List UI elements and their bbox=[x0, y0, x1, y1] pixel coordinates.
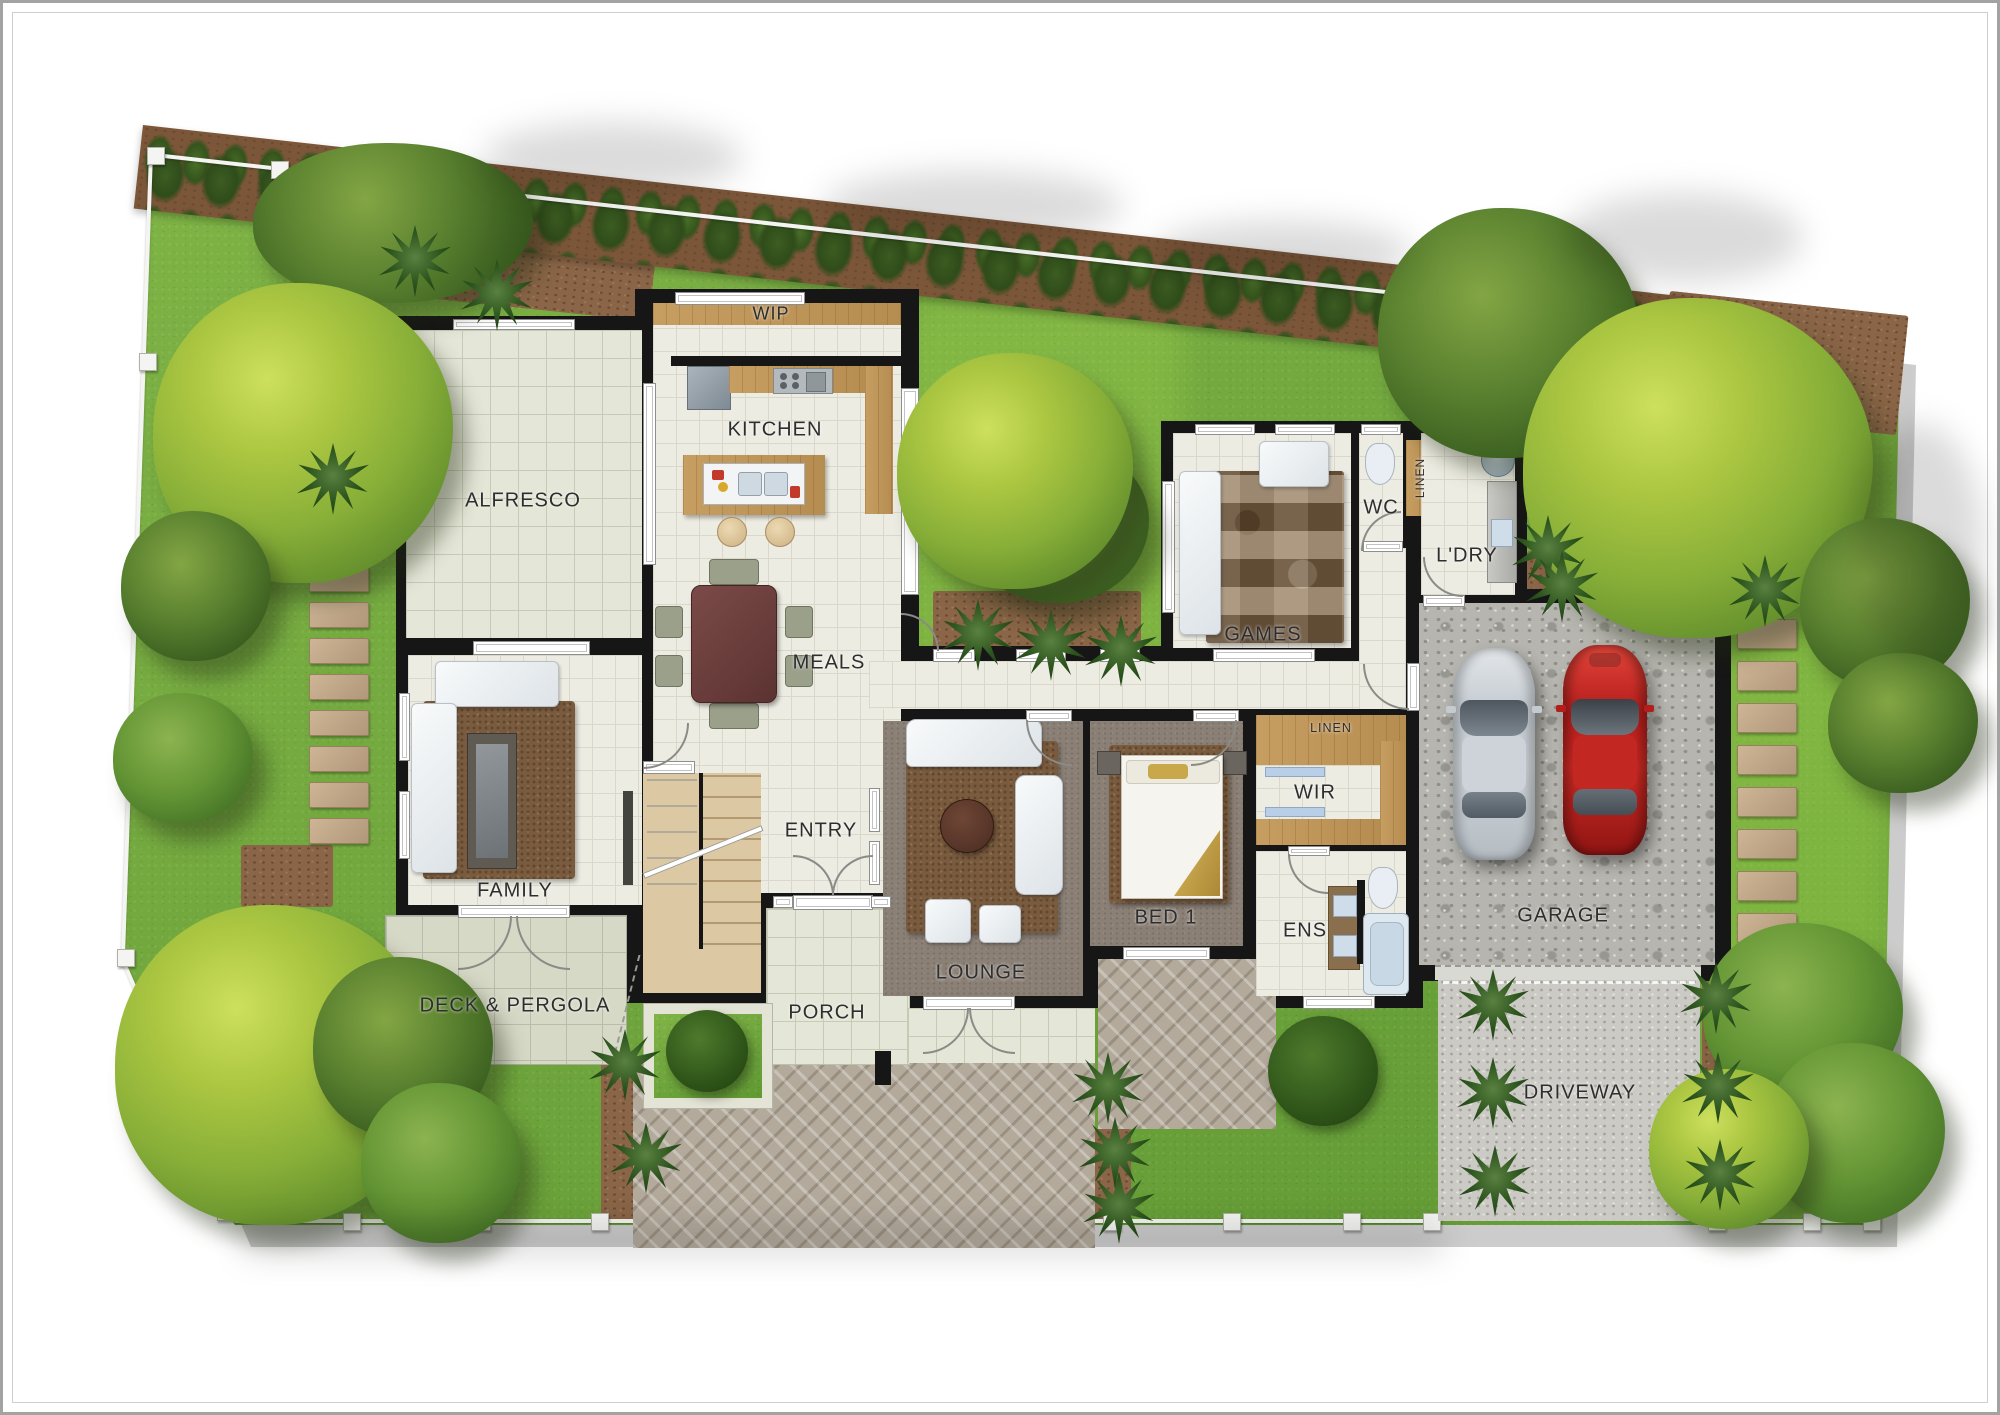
wir-shelf bbox=[1265, 807, 1325, 817]
sink-bowl bbox=[764, 472, 788, 496]
porch-pier bbox=[875, 1051, 891, 1085]
dining-table bbox=[691, 585, 777, 703]
bedside-table bbox=[1097, 751, 1121, 775]
label-linen-wir: LINEN bbox=[1310, 721, 1352, 735]
tree-canopy bbox=[113, 693, 253, 823]
kitchen-stool bbox=[765, 517, 795, 547]
dish-red2 bbox=[790, 486, 800, 498]
tree-canopy bbox=[361, 1083, 521, 1243]
window-games-bottom bbox=[1213, 649, 1315, 662]
stepping-stone bbox=[1737, 871, 1797, 901]
cast-shadow bbox=[483, 123, 743, 193]
ens-toilet bbox=[1368, 867, 1398, 909]
dish-red bbox=[712, 470, 724, 480]
door-entry-double bbox=[793, 895, 873, 910]
bed bbox=[1121, 755, 1223, 899]
window-games-top bbox=[1195, 424, 1255, 435]
car-roof bbox=[1573, 735, 1637, 789]
wir-shelf bbox=[1265, 767, 1325, 777]
lounge-sofa-top bbox=[906, 719, 1042, 767]
window-family-left bbox=[399, 693, 410, 761]
label-kitchen: KITCHEN bbox=[728, 419, 823, 442]
bed-gold-pillow bbox=[1148, 764, 1188, 779]
label-lounge: LOUNGE bbox=[936, 962, 1026, 985]
car-roof bbox=[1462, 736, 1526, 792]
hallway-floor bbox=[869, 661, 1406, 709]
bathtub-inner bbox=[1370, 922, 1404, 986]
dining-chair bbox=[709, 703, 759, 729]
stepping-stone bbox=[1737, 829, 1797, 859]
label-wc: WC bbox=[1363, 497, 1398, 520]
label-garage: GARAGE bbox=[1517, 905, 1609, 928]
car-mirror bbox=[1556, 705, 1566, 712]
family-sofa-left bbox=[411, 703, 457, 873]
label-ens: ENS bbox=[1283, 920, 1327, 943]
stepping-stone bbox=[309, 710, 369, 736]
lounge-armchair bbox=[925, 899, 971, 943]
ldry-sink bbox=[1491, 519, 1513, 547]
games-rug bbox=[1206, 471, 1344, 643]
burner bbox=[792, 373, 799, 380]
car-mirror bbox=[1532, 706, 1542, 713]
window-wc-top bbox=[1361, 424, 1401, 435]
wir-wardrobe-bottom bbox=[1256, 819, 1380, 845]
label-wip: WIP bbox=[753, 304, 790, 325]
cast-shadow bbox=[243, 1225, 1443, 1255]
planter-shrub bbox=[666, 1010, 748, 1092]
label-entry: ENTRY bbox=[785, 820, 857, 843]
bush-cluster bbox=[1828, 653, 1978, 793]
floor-plan-canvas: ALFRESCO WIP KITCHEN MEALS FAMILY ENTRY … bbox=[0, 0, 2000, 1415]
entry-sidelight bbox=[773, 896, 793, 908]
car-mirror bbox=[1446, 706, 1456, 713]
car-windshield bbox=[1571, 699, 1639, 735]
wc-toilet bbox=[1365, 443, 1395, 485]
window-lounge-left bbox=[869, 788, 880, 832]
wir-wardrobe-right bbox=[1380, 741, 1406, 845]
family-console bbox=[467, 733, 517, 869]
dining-chair bbox=[709, 559, 759, 585]
island-sink-unit bbox=[703, 463, 805, 505]
kitchen-bench-side bbox=[865, 366, 893, 514]
side-patio bbox=[1098, 959, 1276, 1129]
stair-rail bbox=[699, 773, 703, 949]
dining-chair bbox=[655, 655, 683, 687]
stair-treads bbox=[703, 775, 761, 947]
bed-gold-throw bbox=[1174, 830, 1220, 896]
stair-dashed-run bbox=[647, 779, 697, 899]
label-bed1: BED 1 bbox=[1135, 907, 1198, 930]
stepping-stone bbox=[1737, 787, 1797, 817]
stepping-stone bbox=[309, 674, 369, 700]
car-silver bbox=[1453, 648, 1535, 860]
cast-shadow bbox=[1153, 221, 1413, 285]
window-bed1-bottom bbox=[1123, 947, 1210, 960]
games-armchair bbox=[1259, 441, 1329, 487]
label-games: GAMES bbox=[1224, 624, 1301, 647]
ens-basin bbox=[1333, 895, 1357, 917]
car-rear-window bbox=[1573, 789, 1637, 815]
console-glass bbox=[476, 744, 508, 858]
window-games-top bbox=[1275, 424, 1335, 435]
bedside-table bbox=[1223, 751, 1247, 775]
tree-canopy-courtyard bbox=[897, 353, 1133, 589]
family-sofa-top bbox=[435, 661, 559, 707]
label-family: FAMILY bbox=[477, 880, 553, 903]
stepping-stone bbox=[309, 638, 369, 664]
label-ldry: L'DRY bbox=[1436, 545, 1498, 568]
stepping-stone bbox=[1737, 703, 1797, 733]
family-tv bbox=[623, 791, 633, 885]
label-alfresco: ALFRESCO bbox=[465, 490, 581, 513]
label-driveway: DRIVEWAY bbox=[1524, 1082, 1636, 1105]
sink-bowl bbox=[738, 472, 762, 496]
dish-yellow bbox=[718, 482, 728, 492]
ens-vanity bbox=[1328, 886, 1360, 970]
stepping-stone bbox=[1737, 745, 1797, 775]
shrub bbox=[1268, 1016, 1378, 1126]
cast-shadow bbox=[823, 171, 1123, 241]
kitchen-stool bbox=[717, 517, 747, 547]
label-deck-pergola: DECK & PERGOLA bbox=[420, 995, 611, 1018]
dining-chair bbox=[655, 606, 683, 638]
cast-shadow bbox=[1853, 423, 1983, 663]
cooktop bbox=[773, 368, 833, 394]
sliding-door-alfresco bbox=[643, 383, 656, 565]
lounge-sofa-right bbox=[1015, 775, 1063, 895]
games-sofa bbox=[1179, 471, 1221, 635]
burner bbox=[780, 373, 787, 380]
label-linen-hall: LINEN bbox=[1413, 458, 1427, 498]
fridge bbox=[687, 366, 731, 410]
window-alfresco-family bbox=[473, 641, 590, 655]
fence-post bbox=[117, 949, 135, 967]
ens-bathtub bbox=[1363, 913, 1409, 995]
car-rear-window bbox=[1462, 792, 1526, 818]
lounge-ottoman bbox=[979, 905, 1021, 943]
car-red bbox=[1563, 645, 1647, 855]
car-mirror bbox=[1644, 705, 1654, 712]
label-meals: MEALS bbox=[793, 652, 866, 675]
burner bbox=[780, 382, 787, 389]
planter-box bbox=[643, 1003, 773, 1109]
stepping-stone bbox=[309, 782, 369, 808]
burner bbox=[792, 382, 799, 389]
fence-rail-bottom-2 bbox=[1095, 1219, 1438, 1223]
fence-post bbox=[139, 353, 157, 371]
window-games-left bbox=[1162, 481, 1175, 613]
fence-post bbox=[147, 147, 165, 165]
stepping-stone bbox=[309, 746, 369, 772]
window-ens-bottom bbox=[1303, 996, 1375, 1009]
stepping-stone bbox=[309, 602, 369, 628]
dining-chair bbox=[785, 606, 813, 638]
label-wir: WIR bbox=[1294, 782, 1336, 805]
stepping-stone bbox=[309, 818, 369, 844]
tree-canopy bbox=[121, 511, 271, 661]
label-porch: PORCH bbox=[788, 1002, 865, 1025]
lounge-coffee-table bbox=[940, 799, 994, 853]
cast-shadow bbox=[1563, 193, 1803, 283]
oven bbox=[806, 372, 826, 392]
garage-door-band bbox=[1435, 965, 1701, 980]
window-family-left bbox=[399, 791, 410, 859]
ens-basin bbox=[1333, 935, 1357, 957]
car-sunroof bbox=[1589, 653, 1621, 667]
car-windshield bbox=[1460, 700, 1528, 736]
garden-bed-left-bottom bbox=[241, 845, 333, 907]
stepping-stone bbox=[1737, 661, 1797, 691]
driveway-dashed-line bbox=[1443, 981, 1695, 984]
kitchen-bench-wall bbox=[671, 356, 903, 366]
entry-sidelight bbox=[871, 896, 891, 908]
